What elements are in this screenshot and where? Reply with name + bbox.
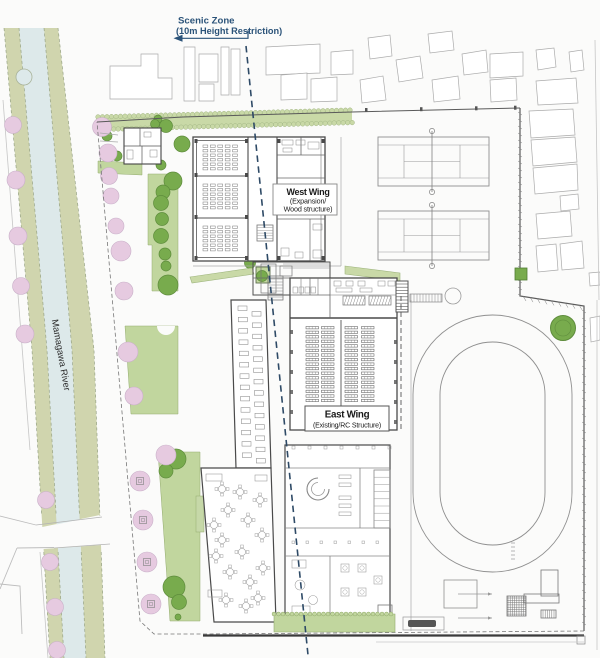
svg-text:(10m Height Restriction): (10m Height Restriction) (176, 26, 282, 36)
svg-text:West Wing: West Wing (286, 187, 329, 197)
svg-text:Wood structure): Wood structure) (284, 205, 333, 214)
svg-text:(Existing/RC Structure): (Existing/RC Structure) (313, 423, 381, 430)
svg-text:East Wing: East Wing (325, 410, 370, 421)
